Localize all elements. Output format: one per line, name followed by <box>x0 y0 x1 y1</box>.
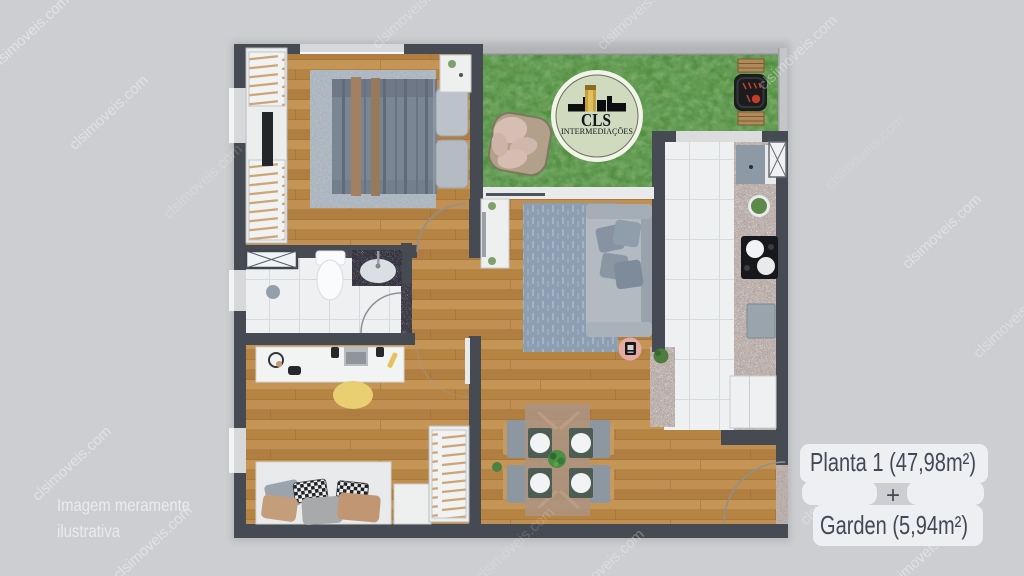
svg-text:clsimoveis.com: clsimoveis.com <box>0 0 73 74</box>
svg-text:clsimoveis.com: clsimoveis.com <box>822 112 908 194</box>
svg-text:Imagem meramente: Imagem meramente <box>57 495 190 515</box>
svg-text:clsimoveis.com: clsimoveis.com <box>899 191 985 273</box>
svg-text:clsimoveis.com: clsimoveis.com <box>29 423 115 505</box>
svg-text:clsimoveis.com: clsimoveis.com <box>66 72 152 154</box>
svg-text:ilustrativa: ilustrativa <box>57 521 120 541</box>
svg-text:clsimoveis.com: clsimoveis.com <box>970 280 1024 362</box>
svg-text:+: + <box>886 482 900 509</box>
svg-text:Garden (5,94m²): Garden (5,94m²) <box>820 510 968 540</box>
svg-text:INTERMEDIAÇÕES: INTERMEDIAÇÕES <box>561 126 633 136</box>
svg-text:Planta 1 (47,98m²): Planta 1 (47,98m²) <box>810 447 976 477</box>
